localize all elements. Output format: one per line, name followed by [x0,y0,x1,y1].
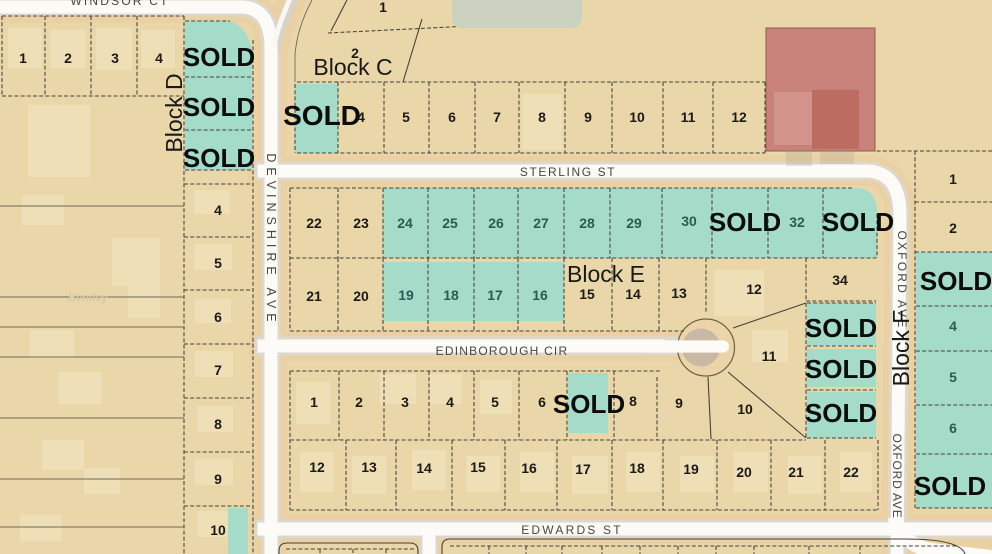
svg-text:9: 9 [584,109,592,125]
svg-text:SOLD: SOLD [920,266,992,296]
svg-text:SOLD: SOLD [822,207,894,237]
svg-text:28: 28 [579,215,595,231]
svg-text:19: 19 [398,287,414,303]
svg-text:Block F: Block F [888,310,914,387]
svg-text:21: 21 [306,288,322,304]
svg-text:2: 2 [351,45,359,61]
svg-text:4: 4 [446,394,454,410]
svg-text:EDINBOROUGH CIR: EDINBOROUGH CIR [436,344,569,358]
svg-text:10: 10 [737,401,753,417]
svg-text:32: 32 [789,214,805,230]
svg-text:30: 30 [681,213,697,229]
svg-text:SOLD: SOLD [553,389,625,419]
svg-text:Bentley: Bentley [68,292,109,304]
svg-text:6: 6 [214,309,222,325]
svg-text:13: 13 [361,459,377,475]
svg-text:8: 8 [629,393,637,409]
svg-text:Block E: Block E [567,261,645,287]
svg-text:5: 5 [214,255,222,271]
svg-text:SOLD: SOLD [805,398,877,428]
svg-text:SOLD: SOLD [183,92,255,122]
svg-text:26: 26 [488,215,504,231]
svg-text:12: 12 [731,109,747,125]
svg-text:5: 5 [491,394,499,410]
svg-text:23: 23 [353,215,369,231]
svg-text:7: 7 [493,109,501,125]
svg-text:10: 10 [629,109,645,125]
svg-text:4: 4 [155,50,163,66]
svg-text:21: 21 [788,464,804,480]
svg-text:8: 8 [538,109,546,125]
svg-text:2: 2 [949,220,957,236]
svg-text:15: 15 [470,459,486,475]
svg-text:19: 19 [683,461,699,477]
svg-text:22: 22 [843,464,859,480]
svg-text:5: 5 [949,369,957,385]
svg-text:6: 6 [448,109,456,125]
svg-text:SOLD: SOLD [805,354,877,384]
svg-text:7: 7 [214,362,222,378]
svg-text:12: 12 [746,281,762,297]
svg-text:11: 11 [681,109,696,125]
svg-text:1: 1 [949,171,957,187]
svg-text:17: 17 [575,461,591,477]
svg-text:2: 2 [355,394,363,410]
svg-text:SOLD: SOLD [709,207,781,237]
svg-text:EDWARDS ST: EDWARDS ST [521,523,623,537]
svg-text:24: 24 [397,215,413,231]
svg-text:SOLD: SOLD [183,143,255,173]
svg-text:3: 3 [111,50,119,66]
svg-text:16: 16 [532,287,548,303]
svg-text:3: 3 [401,394,409,410]
svg-text:2: 2 [64,50,72,66]
svg-text:WINDSOR CT: WINDSOR CT [70,0,169,8]
svg-text:6: 6 [949,420,957,436]
svg-text:9: 9 [214,471,222,487]
svg-text:1: 1 [19,50,27,66]
svg-text:DEVINSHIRE AVE: DEVINSHIRE AVE [264,153,278,326]
svg-text:SOLD: SOLD [183,42,255,72]
svg-text:14: 14 [416,460,432,476]
svg-text:15: 15 [579,286,595,302]
svg-text:18: 18 [443,287,459,303]
svg-text:34: 34 [832,272,848,288]
svg-text:18: 18 [629,460,645,476]
svg-text:6: 6 [538,394,546,410]
svg-text:25: 25 [442,215,458,231]
svg-text:SOLD: SOLD [805,313,877,343]
svg-text:20: 20 [736,464,752,480]
svg-text:OXFORD AVE: OXFORD AVE [890,433,904,518]
svg-text:4: 4 [949,318,957,334]
svg-text:5: 5 [402,109,410,125]
svg-text:11: 11 [762,348,777,364]
svg-text:4: 4 [214,202,222,218]
svg-text:29: 29 [626,215,642,231]
svg-text:17: 17 [487,287,503,303]
svg-text:1: 1 [310,394,318,410]
svg-text:27: 27 [533,215,549,231]
svg-text:22: 22 [306,215,322,231]
svg-text:20: 20 [353,288,369,304]
svg-text:13: 13 [671,285,687,301]
svg-text:STERLING ST: STERLING ST [520,165,616,179]
svg-text:12: 12 [309,459,325,475]
svg-text:10: 10 [210,522,226,538]
svg-text:1: 1 [379,0,387,15]
svg-text:16: 16 [521,460,537,476]
svg-text:8: 8 [214,416,222,432]
svg-text:9: 9 [675,395,683,411]
svg-text:SOLD: SOLD [914,471,986,501]
svg-text:14: 14 [625,286,641,302]
svg-text:SOLD: SOLD [283,100,361,131]
